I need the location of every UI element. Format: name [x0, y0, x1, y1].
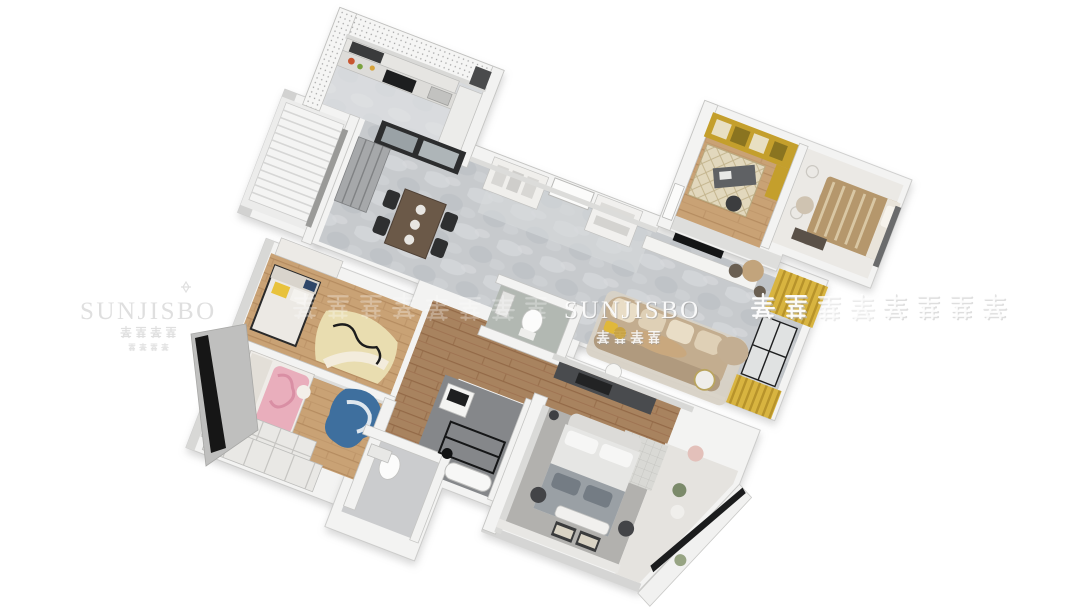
svg-text:SUNJISBO: SUNJISBO: [80, 298, 217, 325]
svg-text:SUNJISBO: SUNJISBO: [564, 297, 701, 324]
